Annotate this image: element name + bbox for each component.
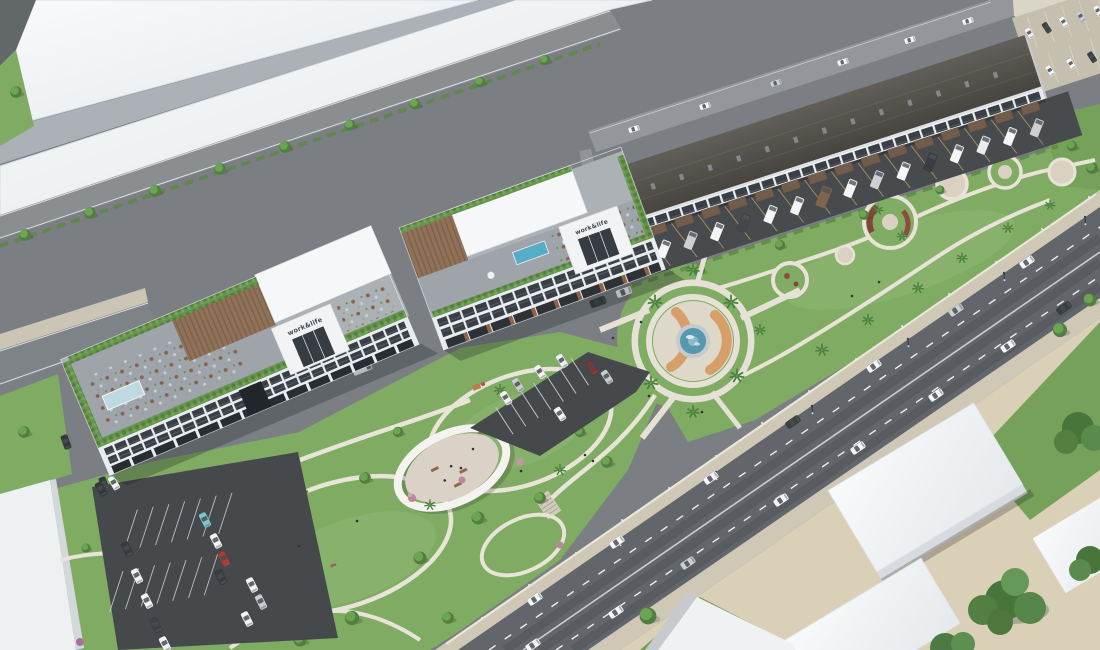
aerial-render-canvas: work&life work&life xyxy=(0,0,1100,650)
aerial-render-viewport: work&life work&life xyxy=(0,0,1100,650)
daylight-haze xyxy=(0,0,1100,650)
